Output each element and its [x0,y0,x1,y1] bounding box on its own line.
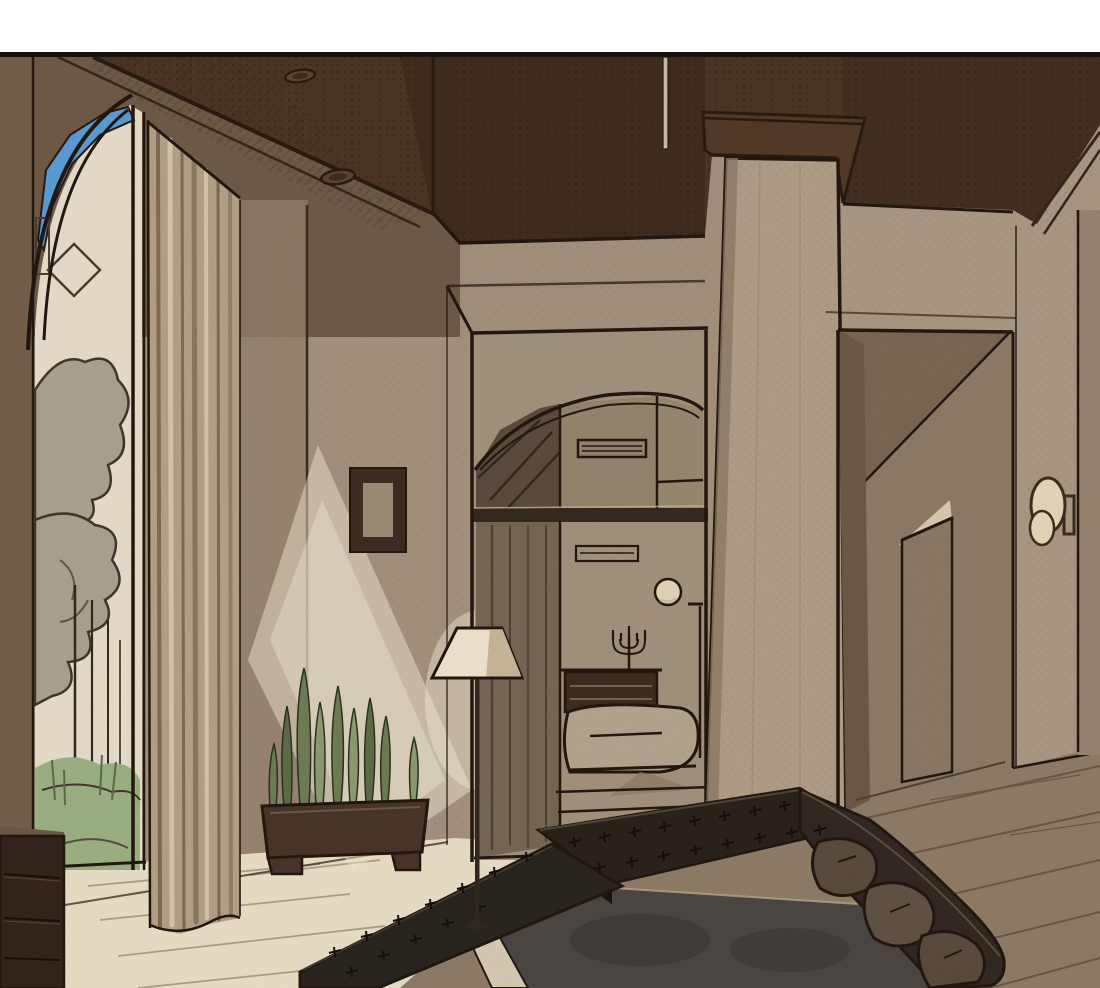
top-white-margin [0,0,1100,52]
panel-margin [0,0,1100,57]
comic-panel [0,0,1100,988]
interior-scene [0,0,1100,988]
panel-border-line [0,52,1100,57]
film-grain-overlay [0,57,1100,988]
